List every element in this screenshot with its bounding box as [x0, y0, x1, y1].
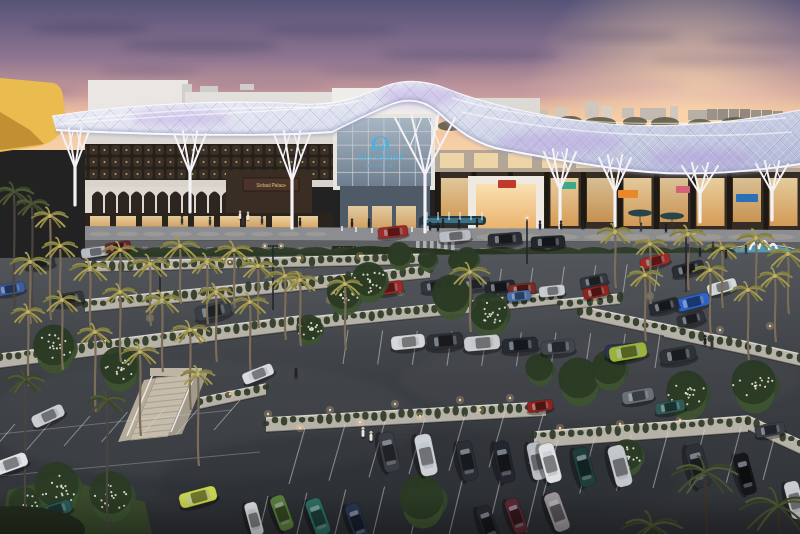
hanging-vines — [263, 384, 269, 389]
hanging-vines — [142, 336, 148, 346]
arch-panel — [92, 192, 103, 214]
hanging-vines — [151, 335, 157, 341]
hanging-vines — [362, 412, 368, 420]
hanging-vines — [670, 422, 676, 430]
hanging-vines — [251, 321, 257, 329]
clerestory-window — [440, 153, 464, 168]
hanging-vines — [766, 345, 772, 355]
bollard — [371, 228, 373, 233]
hanging-vines — [633, 423, 639, 433]
hanging-vines — [605, 424, 611, 435]
hanging-vines — [413, 306, 419, 314]
path-light — [229, 393, 231, 395]
hanging-vines — [689, 331, 695, 339]
hanging-vines — [381, 254, 387, 261]
arch-panel — [118, 192, 129, 214]
storefront-sign-text: Sinbad Palace — [256, 183, 286, 188]
hanging-vines — [605, 312, 611, 318]
hanging-vines — [282, 259, 288, 265]
hanging-vines — [191, 290, 197, 300]
cloud — [650, 54, 790, 66]
patio-umbrella — [660, 213, 684, 220]
hanging-vines — [786, 353, 792, 359]
path-light — [769, 325, 771, 327]
hanging-vines — [745, 416, 751, 425]
hanging-vines — [344, 413, 350, 422]
arch-panel — [144, 192, 155, 214]
hanging-vines — [360, 312, 366, 319]
hanging-vines — [245, 281, 251, 292]
hanging-vines — [617, 292, 623, 302]
hanging-vines — [471, 406, 477, 413]
hanging-vines — [788, 436, 794, 441]
distant-building — [707, 109, 717, 120]
shop-sign — [498, 180, 516, 188]
hanging-vines — [708, 417, 714, 425]
lit-shop-window — [624, 178, 652, 226]
hanging-vines — [661, 424, 667, 430]
hanging-vines — [735, 417, 741, 423]
hanging-vines — [624, 425, 630, 432]
hanging-vines — [395, 307, 401, 315]
hanging-vines — [124, 337, 130, 347]
hanging-vines — [717, 419, 723, 424]
hanging-vines — [443, 407, 449, 414]
path-light — [679, 419, 681, 421]
hanging-vines — [642, 423, 648, 433]
hanging-vines — [353, 412, 359, 418]
hanging-vines — [557, 300, 563, 306]
hanging-vines — [595, 312, 601, 317]
hanging-vines — [661, 325, 667, 331]
path-light — [299, 257, 301, 259]
hanging-vines — [726, 336, 732, 346]
pier — [654, 172, 659, 232]
hanging-vines — [253, 384, 259, 393]
arch-panel — [209, 192, 220, 214]
hanging-vines — [404, 307, 410, 313]
path-light — [719, 329, 721, 331]
cloud — [560, 31, 680, 41]
hanging-vines — [434, 408, 440, 419]
hanging-vines — [308, 417, 314, 422]
hanging-vines — [540, 432, 546, 437]
hanging-vines — [389, 413, 395, 419]
hanging-vines — [244, 388, 250, 395]
hanging-vines — [498, 403, 504, 413]
canopy-purple-glow — [648, 148, 752, 168]
hanging-vines — [633, 318, 639, 326]
hanging-vines — [398, 409, 404, 418]
hanging-vines — [726, 418, 732, 427]
arch-panel — [170, 192, 181, 214]
hanging-vines — [290, 416, 296, 423]
hanging-vines — [281, 417, 287, 426]
hanging-vines — [260, 322, 266, 328]
cloud — [120, 39, 280, 53]
bottom-vignette — [0, 494, 800, 534]
hanging-vines — [324, 317, 330, 325]
path-light — [619, 423, 621, 425]
hanging-vines — [317, 414, 323, 423]
path-light — [419, 415, 421, 417]
hanging-vines — [549, 430, 555, 439]
hanging-vines — [425, 409, 431, 416]
hanging-vines — [452, 406, 458, 416]
city-centre-arch-icon — [377, 145, 379, 151]
cloud — [30, 22, 150, 34]
lit-entry-door — [372, 206, 392, 230]
pier — [727, 172, 732, 232]
hanging-vines — [79, 343, 85, 353]
hanging-vines — [318, 255, 324, 263]
cloud — [100, 65, 200, 75]
path-light — [267, 413, 269, 415]
hanging-vines — [568, 429, 574, 437]
hanging-vines — [596, 427, 602, 437]
hanging-vines — [422, 304, 428, 313]
city-centre-arch-icon — [382, 145, 384, 151]
hanging-vines — [206, 395, 212, 402]
path-light — [559, 427, 561, 429]
path-light — [229, 261, 231, 263]
hanging-vines — [100, 301, 106, 306]
hanging-vines — [651, 323, 657, 328]
clerestory-window — [474, 153, 498, 168]
hanging-vines — [390, 271, 396, 280]
hanging-vines — [242, 324, 248, 331]
hanging-vines — [755, 345, 761, 353]
bollard — [355, 227, 357, 232]
hanging-vines — [336, 257, 342, 262]
distant-building — [622, 108, 634, 118]
hanging-vines — [567, 300, 573, 307]
bollard — [411, 227, 413, 232]
shop-sign — [736, 194, 758, 202]
hanging-vines — [327, 256, 333, 263]
hanging-vines — [652, 423, 658, 430]
cloud — [380, 48, 560, 62]
hanging-vines — [363, 255, 369, 261]
arch-panel — [196, 192, 207, 214]
hanging-vines — [577, 299, 583, 304]
hanging-vines — [698, 420, 704, 427]
arch-panel — [105, 192, 116, 214]
hanging-vines — [263, 421, 269, 426]
path-light — [359, 255, 361, 257]
hanging-vines — [235, 390, 241, 397]
hanging-vines — [409, 267, 415, 274]
arch-panel — [157, 192, 168, 214]
rooftop-unit — [200, 86, 218, 92]
hanging-vines — [516, 404, 522, 413]
hanging-vines — [6, 352, 12, 359]
hanging-vines — [380, 411, 386, 422]
patio-umbrella — [628, 210, 652, 217]
mall-logo-text: CITY CENTRE — [357, 154, 404, 161]
hanging-vines — [318, 275, 324, 284]
hanging-vines — [299, 417, 305, 423]
mall-rendering-scene: CITY CENTRE AL ZAHIA Sinbad Palace — [0, 0, 800, 534]
hanging-vines — [377, 310, 383, 318]
hanging-vines — [689, 422, 695, 428]
mall-aerial-rendering: CITY CENTRE AL ZAHIA Sinbad Palace — [0, 0, 800, 534]
arch-panel — [131, 192, 142, 214]
lit-shop-window — [441, 178, 469, 222]
path-light — [394, 403, 396, 405]
hanging-vines — [263, 281, 269, 291]
path-light — [479, 409, 481, 411]
hanging-vines — [233, 323, 239, 334]
hanging-vines — [182, 291, 188, 299]
hanging-vines — [577, 430, 583, 435]
bollard — [341, 226, 343, 231]
path-light — [509, 397, 511, 399]
distant-building — [602, 106, 612, 118]
hanging-vines — [345, 256, 351, 262]
hanging-vines — [91, 300, 97, 305]
path-light — [459, 399, 461, 401]
hanging-vines — [97, 341, 103, 348]
hanging-vines — [587, 429, 593, 437]
pier — [545, 172, 550, 232]
hanging-vines — [216, 394, 222, 400]
hanging-vines — [670, 327, 676, 333]
hanging-vines — [182, 263, 188, 268]
hanging-vines — [288, 317, 294, 326]
distant-building — [585, 102, 599, 118]
pier — [581, 172, 586, 232]
hanging-vines — [236, 286, 242, 294]
hanging-vines — [407, 408, 413, 418]
hanging-vines — [88, 341, 94, 349]
hanging-vines — [717, 337, 723, 345]
hanging-vines — [735, 339, 741, 348]
hanging-vines — [507, 404, 513, 414]
hanging-vines — [15, 352, 21, 359]
shop-sign — [676, 186, 690, 193]
hanging-vines — [309, 257, 315, 267]
cloud — [260, 24, 400, 36]
path-light — [329, 409, 331, 411]
hanging-vines — [326, 414, 332, 425]
cloud — [320, 65, 440, 75]
shop-sign — [618, 190, 638, 198]
path-light — [359, 421, 361, 423]
hanging-vines — [372, 253, 378, 262]
hanging-vines — [335, 412, 341, 422]
hanging-vines — [270, 318, 276, 328]
hanging-vines — [776, 351, 782, 357]
hanging-vines — [489, 406, 495, 414]
hanging-vines — [371, 412, 377, 420]
hanging-vines — [224, 327, 230, 333]
hanging-vines — [272, 417, 278, 423]
path-light — [299, 427, 301, 429]
hanging-vines — [623, 315, 629, 323]
hanging-vines — [386, 308, 392, 316]
hanging-vines — [369, 311, 375, 321]
rooftop-unit — [240, 84, 254, 90]
hanging-vines — [614, 315, 620, 320]
mall-logo-subtext: AL ZAHIA — [367, 164, 395, 168]
